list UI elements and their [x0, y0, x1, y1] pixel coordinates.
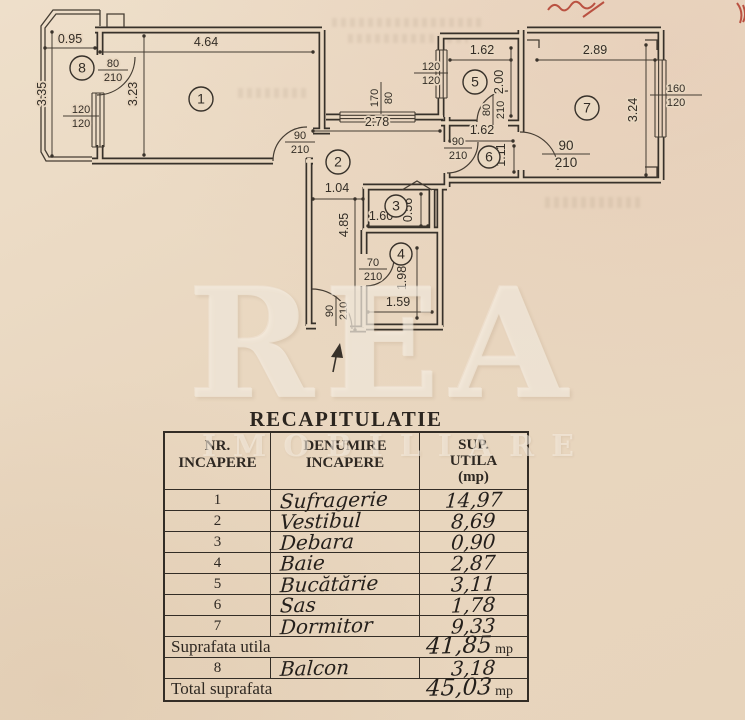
dim-label: 3.35 — [35, 82, 49, 106]
room-name: Baie — [279, 552, 325, 573]
room-name-cell: Balcon — [271, 658, 420, 678]
opening-size-labels: 80 210 120 120 90 210 170 80 120 120 — [63, 58, 702, 326]
svg-text:210: 210 — [104, 72, 122, 84]
room-nr: 4 — [165, 553, 271, 573]
svg-text:120: 120 — [72, 118, 90, 130]
room-nr: 3 — [165, 532, 271, 552]
room-number: 6 — [478, 146, 500, 168]
room-number: 3 — [385, 195, 407, 217]
svg-text:120: 120 — [72, 104, 90, 116]
svg-text:7: 7 — [583, 100, 591, 116]
dim-label: 1.98 — [395, 266, 409, 290]
room-area-cell: 3,11 — [420, 574, 527, 594]
svg-text:3: 3 — [392, 198, 400, 214]
svg-text:8: 8 — [78, 60, 86, 76]
window-size-label: 170 80 — [369, 82, 395, 114]
room-area: 3,11 — [451, 573, 497, 594]
table-row: 3 Debara 0,90 — [165, 532, 527, 553]
table-row: 7 Dormitor 9,33 — [165, 616, 527, 637]
room-number: 2 — [326, 150, 350, 174]
room-name: Bucătărie — [279, 573, 379, 596]
room-number: 1 — [189, 87, 213, 111]
svg-text:90: 90 — [558, 138, 573, 153]
header-sup-utila: SUP. UTILA (mp) — [420, 433, 527, 489]
room-name-cell: Sufragerie — [271, 490, 420, 510]
room-number: 4 — [390, 243, 412, 265]
svg-text:70: 70 — [367, 257, 379, 269]
window-size-label: 120 120 — [63, 104, 99, 130]
svg-text:80: 80 — [481, 104, 493, 116]
svg-text:160: 160 — [667, 83, 685, 95]
room-name-cell: Dormitor — [271, 616, 420, 636]
dim-label: 2.89 — [583, 43, 607, 57]
svg-text:210: 210 — [495, 101, 507, 119]
floor-plan: 0.95 4.64 3.35 3.23 2.78 1.04 4.85 1.60 … — [0, 0, 745, 410]
room-area-cell: 8,69 — [420, 511, 527, 531]
svg-text:210: 210 — [291, 144, 309, 156]
room-area: 8,69 — [451, 510, 497, 531]
header-denumire-incapere: DENUMIRE INCAPERE — [271, 433, 420, 489]
dim-label: 4.64 — [194, 35, 218, 49]
room-area-cell: 1,78 — [420, 595, 527, 615]
svg-text:120: 120 — [667, 97, 685, 109]
svg-text:80: 80 — [107, 58, 119, 70]
suprafata-utila-value: 41,85mp — [426, 637, 521, 658]
room-area-cell: 2,87 — [420, 553, 527, 573]
total-suprafata-value: 45,03mp — [426, 679, 521, 700]
window-size-label: 160 120 — [650, 83, 702, 109]
svg-text:5: 5 — [471, 74, 479, 90]
header-nr-incapere: NR. INCAPERE — [165, 433, 271, 489]
room-name-cell: Debara — [271, 532, 420, 552]
svg-text:90: 90 — [452, 136, 464, 148]
entrance-arrow — [331, 343, 343, 372]
dim-label: 1.59 — [386, 295, 410, 309]
room-nr: 5 — [165, 574, 271, 594]
svg-text:120: 120 — [422, 61, 440, 73]
svg-text:4: 4 — [397, 246, 405, 262]
svg-text:2: 2 — [334, 154, 342, 170]
dim-label: 3.24 — [626, 98, 640, 122]
dim-label: 3.23 — [126, 82, 140, 106]
table-row-balcon: 8 Balcon 3,18 — [165, 658, 527, 679]
room-number: 8 — [70, 56, 94, 80]
svg-text:80: 80 — [383, 92, 395, 104]
dim-label: 1.62 — [470, 123, 494, 137]
recap-table: NR. INCAPERE DENUMIRE INCAPERE SUP. UTIL… — [163, 431, 529, 702]
suprafata-utila-label: Suprafata utila — [171, 637, 271, 657]
table-row: 5 Bucătărie 3,11 — [165, 574, 527, 595]
room-area-cell: 0,90 — [420, 532, 527, 552]
svg-text:1: 1 — [197, 91, 205, 107]
dim-label: 1.62 — [470, 43, 494, 57]
room-area: 2,87 — [451, 552, 497, 573]
svg-text:120: 120 — [422, 75, 440, 87]
door-size-label: 80 210 — [481, 95, 507, 125]
dim-label: 2.78 — [365, 115, 389, 129]
room-number: 7 — [575, 96, 599, 120]
total-suprafata-row: Total suprafata 45,03mp — [165, 679, 527, 700]
room-area: 1,78 — [451, 594, 497, 615]
room-area-cell: 14,97 — [420, 490, 527, 510]
room-nr: 8 — [165, 658, 271, 678]
room-number: 5 — [463, 70, 487, 94]
door-size-label: 90 210 — [542, 138, 590, 170]
svg-text:90: 90 — [294, 130, 306, 142]
svg-text:210: 210 — [555, 155, 578, 170]
svg-text:90: 90 — [324, 305, 336, 317]
total-suprafata-label: Total suprafata — [171, 679, 272, 699]
table-title: RECAPITULATIE — [163, 407, 529, 432]
dim-label: 1.04 — [325, 181, 349, 195]
room-nr: 1 — [165, 490, 271, 510]
table-header-row: NR. INCAPERE DENUMIRE INCAPERE SUP. UTIL… — [165, 433, 527, 490]
svg-text:210: 210 — [364, 271, 382, 283]
room-name: Balcon — [279, 657, 349, 679]
room-name-cell: Bucătărie — [271, 574, 420, 594]
room-area: 9,33 — [451, 615, 497, 636]
svg-text:210: 210 — [449, 150, 467, 162]
svg-text:6: 6 — [485, 149, 493, 165]
red-pen-marks — [548, 2, 745, 23]
room-nr: 7 — [165, 616, 271, 636]
dim-label: 0.95 — [58, 32, 82, 46]
scanned-floor-plan-page: 0.95 4.64 3.35 3.23 2.78 1.04 4.85 1.60 … — [0, 0, 745, 720]
room-area: 3,18 — [451, 657, 497, 678]
room-name: Sas — [279, 595, 316, 616]
door-size-label: 70 210 — [359, 257, 387, 283]
door-size-label: 80 210 — [98, 58, 128, 84]
dim-label: 4.85 — [337, 213, 351, 237]
room-area: 0,90 — [451, 531, 497, 552]
room-nr: 2 — [165, 511, 271, 531]
svg-text:170: 170 — [369, 89, 381, 107]
room-name-cell: Sas — [271, 595, 420, 615]
room-nr: 6 — [165, 595, 271, 615]
dim-label: 2.00 — [492, 70, 506, 94]
room-name-cell: Baie — [271, 553, 420, 573]
room-name: Dormitor — [279, 615, 373, 637]
door-size-label: 90 210 — [285, 130, 315, 156]
svg-text:210: 210 — [338, 302, 350, 320]
door-size-label: 90 210 — [324, 296, 350, 326]
room-name-cell: Vestibul — [271, 511, 420, 531]
